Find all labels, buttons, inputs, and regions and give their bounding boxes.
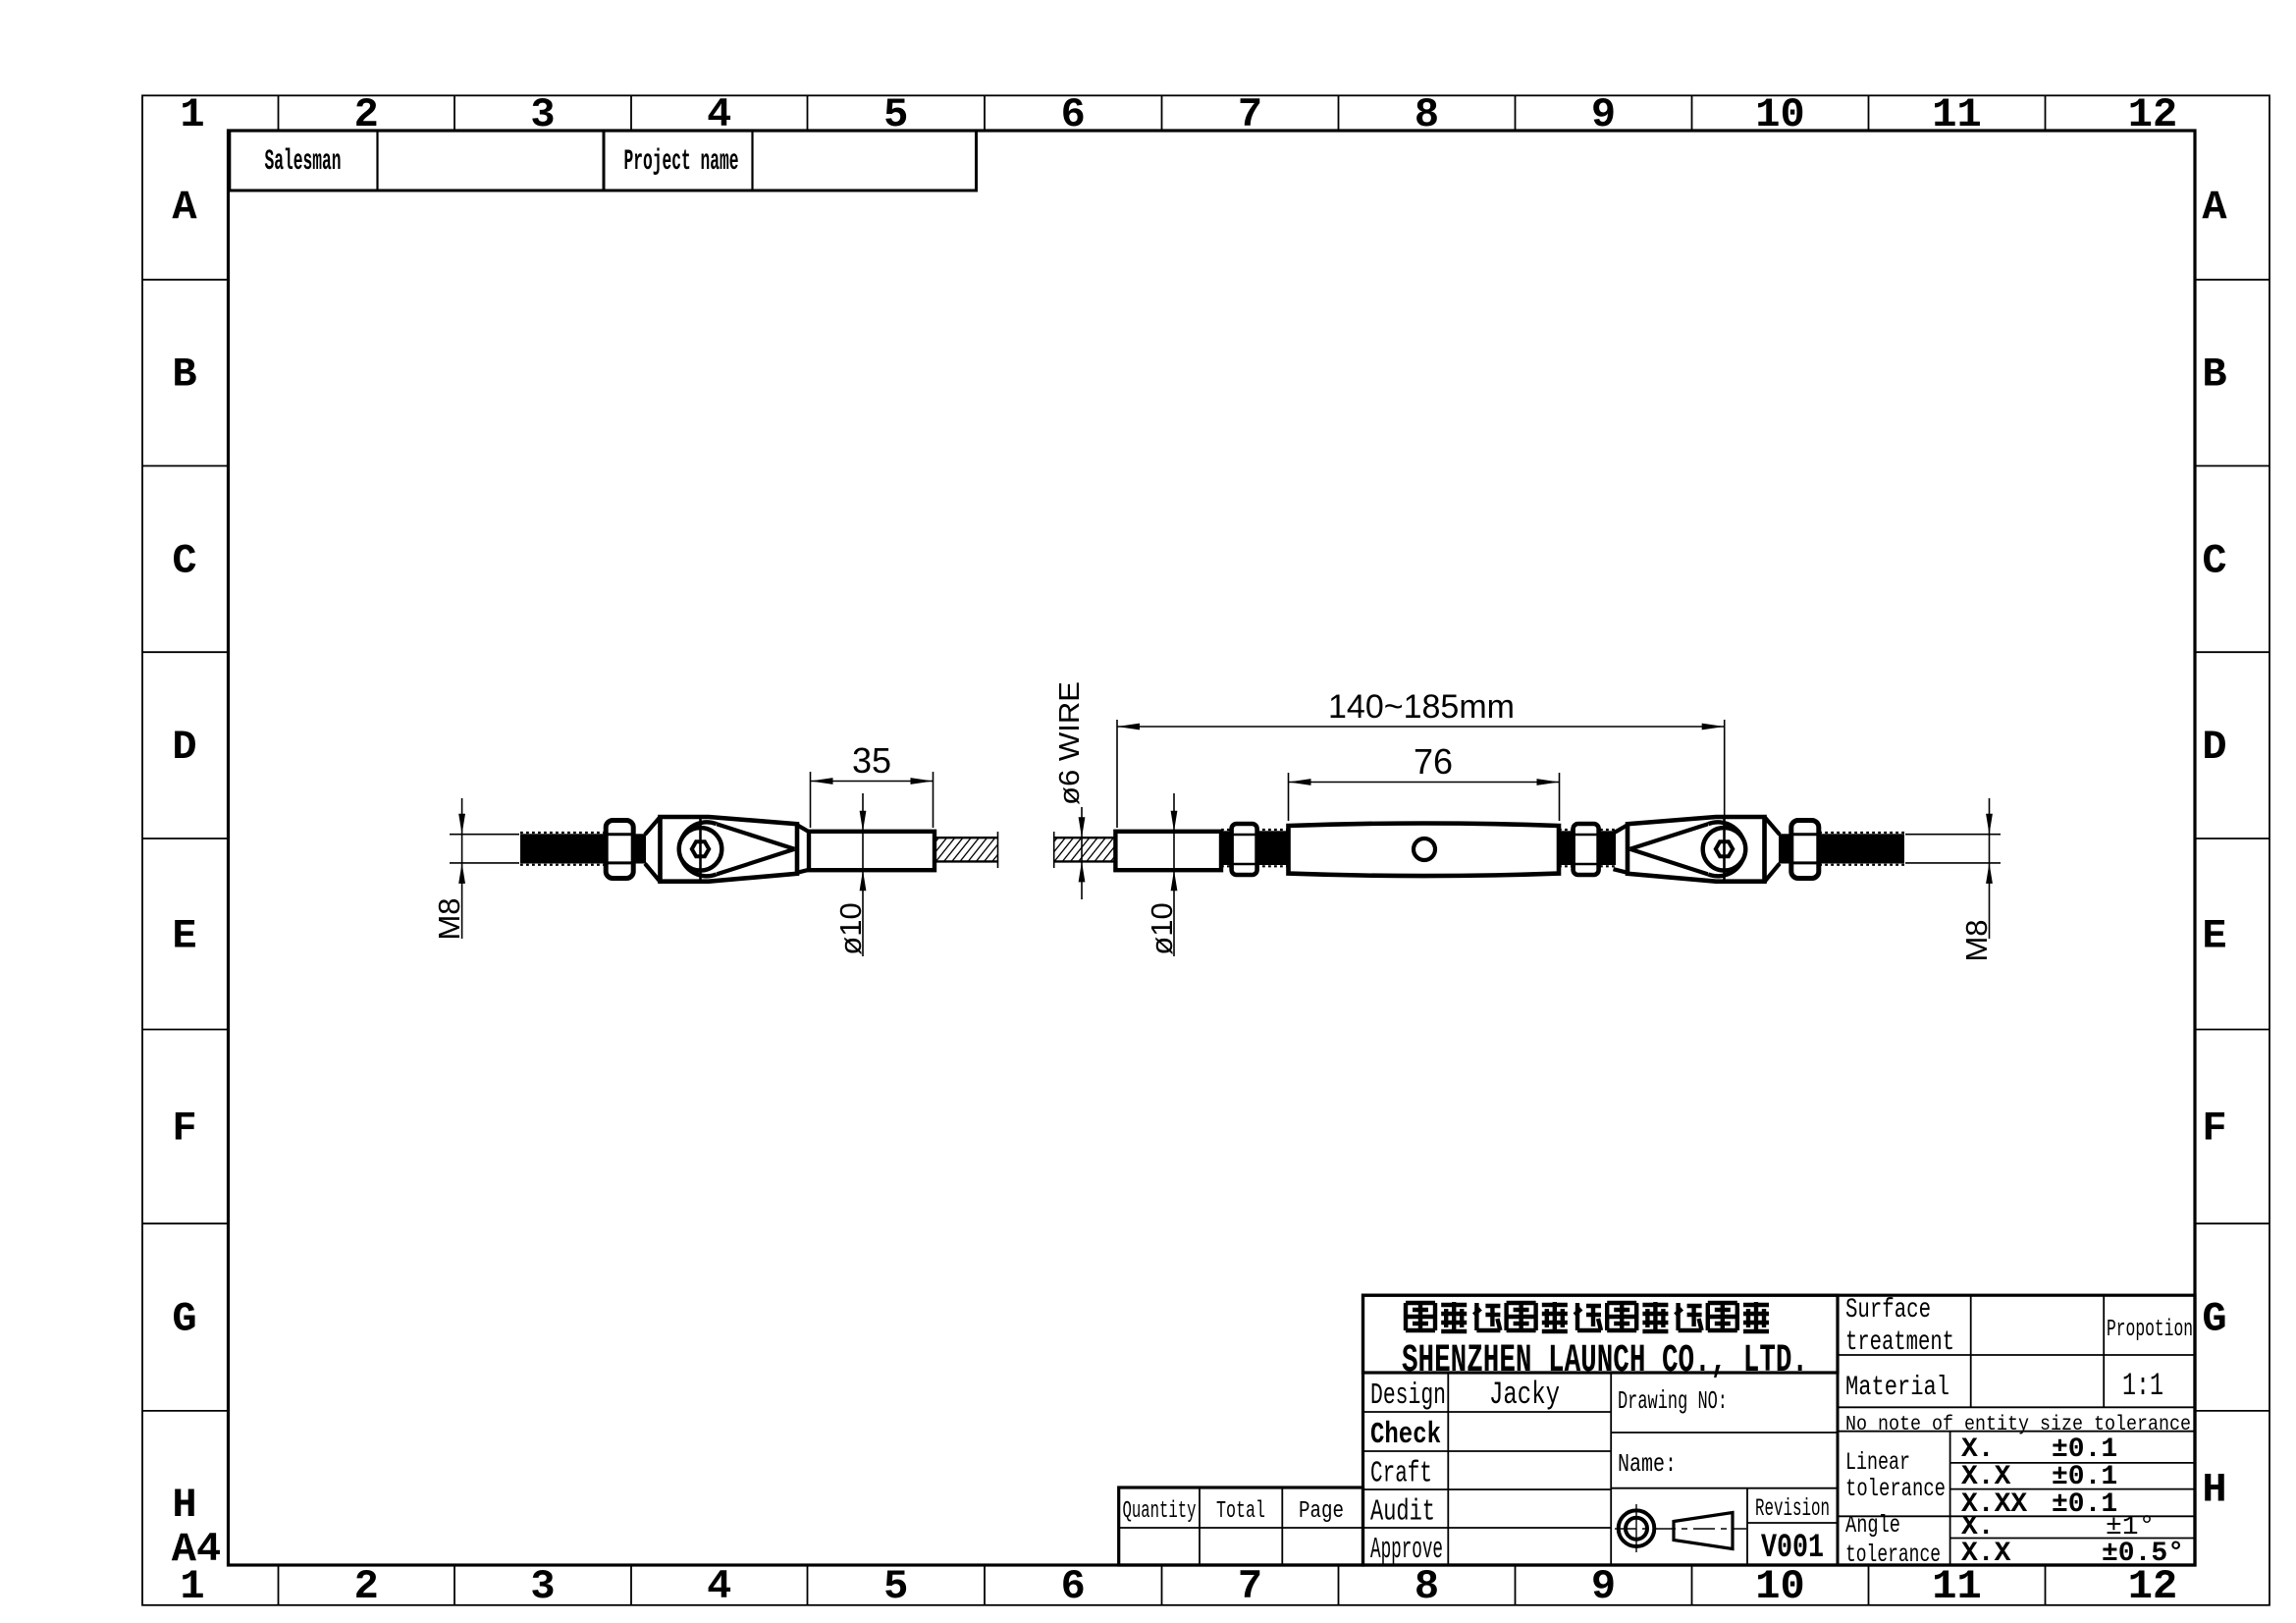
svg-text:1:1: 1:1 [2122,1368,2163,1404]
svg-text:M8: M8 [1959,919,1994,961]
svg-text:H: H [2202,1467,2226,1514]
svg-text:G: G [2202,1296,2226,1343]
svg-text:tolerance: tolerance [1845,1541,1941,1569]
svg-text:Design: Design [1370,1379,1446,1413]
svg-text:A: A [172,184,197,231]
svg-text:9: 9 [1591,91,1616,138]
svg-text:Total: Total [1216,1498,1265,1525]
svg-text:B: B [2202,352,2226,399]
svg-text:Craft: Craft [1370,1457,1432,1491]
svg-text:8: 8 [1415,91,1439,138]
svg-text:C: C [172,537,196,584]
svg-text:E: E [172,912,196,959]
svg-text:No note of entity size toleran: No note of entity size tolerance [1845,1414,2191,1436]
svg-text:7: 7 [1238,91,1262,138]
svg-text:5: 5 [883,1563,908,1610]
svg-text:Approve: Approve [1370,1533,1443,1567]
svg-text:Name:: Name: [1618,1449,1677,1479]
svg-text:X.X: X.X [1961,1462,2011,1492]
svg-text:35: 35 [852,740,891,781]
svg-text:Jacky: Jacky [1489,1377,1560,1413]
svg-text:Linear: Linear [1845,1448,1910,1477]
svg-text:2: 2 [354,1563,379,1610]
svg-text:Check: Check [1370,1418,1441,1452]
svg-text:M8: M8 [432,897,466,940]
svg-text:Quantity: Quantity [1123,1498,1197,1525]
svg-text:76: 76 [1414,741,1453,782]
svg-text:4: 4 [707,1563,731,1610]
svg-text:Surface: Surface [1845,1295,1931,1325]
svg-text:ø10: ø10 [833,902,868,954]
svg-text:1: 1 [180,91,204,138]
svg-text:12: 12 [2128,1563,2177,1610]
svg-text:V001: V001 [1761,1530,1824,1567]
svg-text:140~185mm: 140~185mm [1328,688,1515,726]
svg-text:H: H [172,1482,196,1529]
svg-text:11: 11 [1932,1563,1981,1610]
svg-text:A: A [2202,184,2227,231]
svg-text:Angle: Angle [1845,1511,1900,1540]
svg-text:3: 3 [530,1563,555,1610]
svg-text:10: 10 [1755,91,1804,138]
svg-text:Salesman: Salesman [265,145,342,179]
svg-text:G: G [172,1296,196,1343]
svg-text:6: 6 [1061,91,1086,138]
svg-text:12: 12 [2128,91,2177,138]
svg-text:Project name: Project name [624,145,739,179]
svg-text:SHENZHEN LAUNCH CO., LTD.: SHENZHEN LAUNCH CO., LTD. [1402,1339,1808,1383]
svg-text:D: D [2202,724,2226,771]
svg-text:ø6 WIRE: ø6 WIRE [1054,681,1086,805]
svg-text:±0.5°: ±0.5° [2102,1539,2184,1569]
svg-text:E: E [2202,912,2226,959]
svg-text:X.: X. [1961,1434,1995,1465]
svg-text:±0.1: ±0.1 [2052,1462,2117,1492]
svg-text:8: 8 [1415,1563,1439,1610]
svg-text:B: B [172,352,196,399]
svg-text:treatment: treatment [1845,1327,1954,1358]
svg-text:ø10: ø10 [1145,902,1179,954]
svg-text:Revision: Revision [1755,1494,1830,1523]
svg-text:Material: Material [1845,1373,1949,1403]
svg-text:F: F [2202,1105,2226,1152]
svg-text:Propotion: Propotion [2107,1317,2193,1343]
svg-text:Drawing NO:: Drawing NO: [1618,1386,1728,1416]
svg-text:D: D [172,724,196,771]
svg-text:9: 9 [1591,1563,1616,1610]
svg-text:X.X: X.X [1961,1539,2011,1569]
svg-text:A4: A4 [172,1526,221,1573]
svg-text:C: C [2202,537,2226,584]
svg-text:tolerance: tolerance [1845,1475,1946,1503]
svg-text:7: 7 [1238,1563,1262,1610]
svg-text:±0.1: ±0.1 [2052,1434,2117,1465]
svg-text:6: 6 [1061,1563,1086,1610]
svg-text:11: 11 [1932,91,1981,138]
svg-text:Page: Page [1299,1498,1344,1525]
svg-text:10: 10 [1755,1563,1804,1610]
svg-text:F: F [172,1105,196,1152]
svg-text:Audit: Audit [1370,1495,1435,1530]
